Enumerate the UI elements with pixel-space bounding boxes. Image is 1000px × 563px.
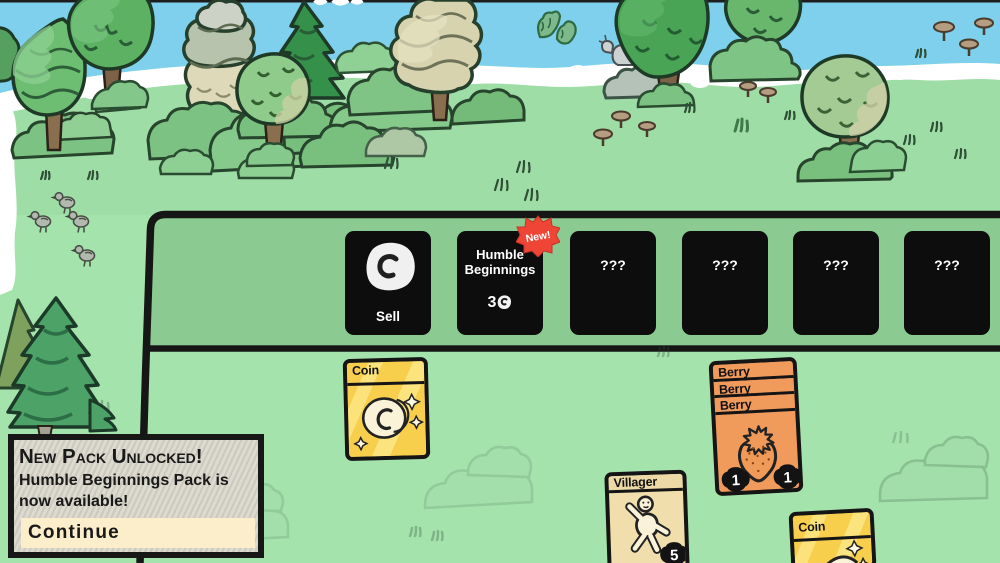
- svg-text:5: 5: [670, 547, 679, 563]
- svg-text:1: 1: [783, 469, 792, 486]
- svg-text:1: 1: [731, 472, 740, 489]
